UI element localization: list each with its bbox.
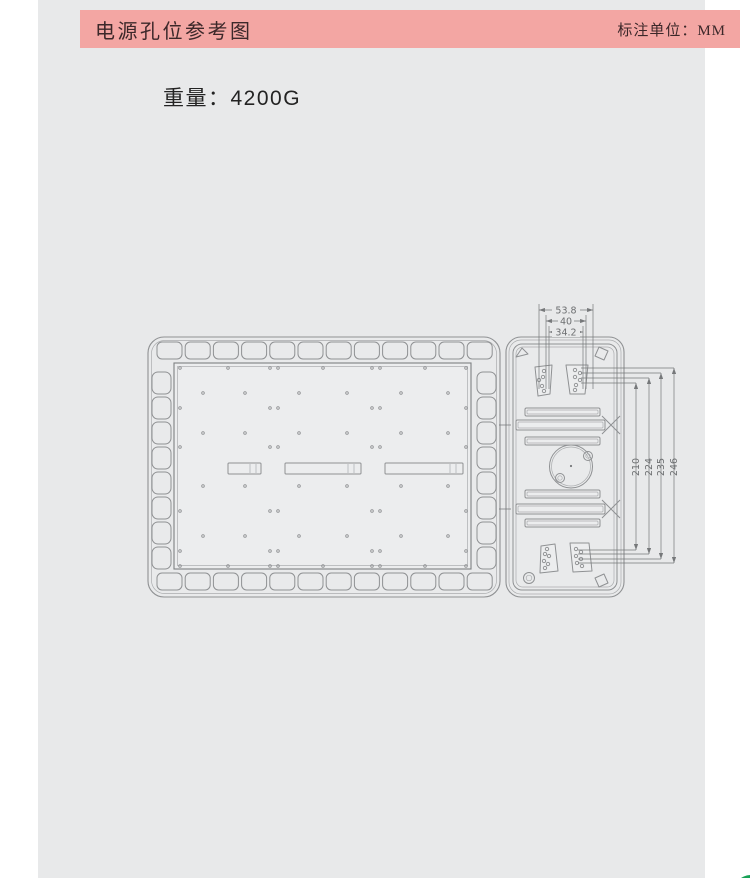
end-view xyxy=(499,337,624,597)
dim-right-2: 224 xyxy=(644,458,655,476)
technical-drawing: 53.8 40 34.2 210 224 235 246 xyxy=(133,290,693,610)
weight-label: 重量：4200G xyxy=(163,82,301,112)
dim-right-1: 210 xyxy=(631,458,642,476)
page: 电源孔位参考图 标注单位：MM 重量：4200G xyxy=(0,0,750,878)
header-bar: 电源孔位参考图 标注单位：MM xyxy=(80,10,740,48)
dim-right-4: 246 xyxy=(669,458,680,476)
dim-top-3: 34.2 xyxy=(555,328,576,339)
dim-top-2: 40 xyxy=(560,317,572,328)
unit-label: 标注单位：MM xyxy=(617,19,726,40)
page-title: 电源孔位参考图 xyxy=(95,15,253,44)
dim-right-3: 235 xyxy=(656,458,667,476)
top-view xyxy=(148,337,500,597)
dim-top-1: 53.8 xyxy=(555,306,576,317)
content-column: 电源孔位参考图 标注单位：MM 重量：4200G xyxy=(38,0,705,878)
